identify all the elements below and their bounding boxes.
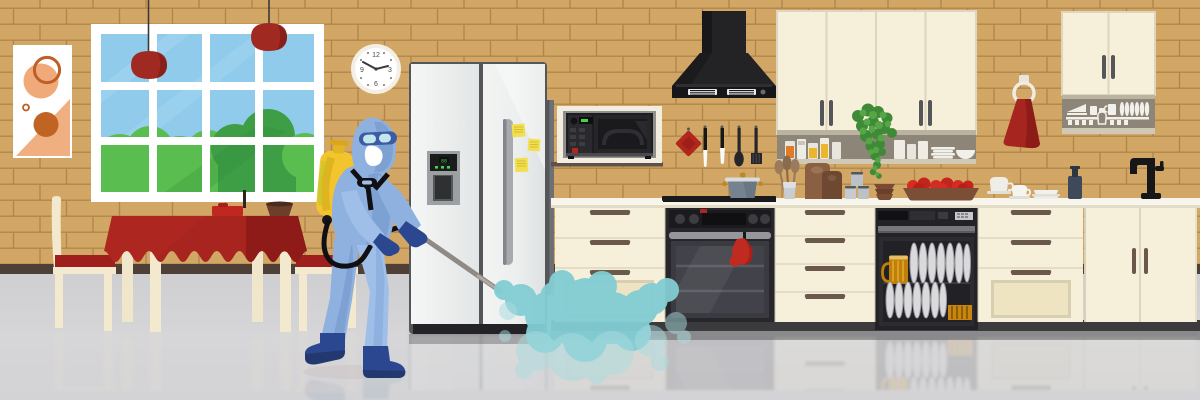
svg-text:12: 12 xyxy=(372,52,380,59)
svg-text:9: 9 xyxy=(360,67,364,74)
svg-text:6: 6 xyxy=(374,81,378,88)
svg-text:3: 3 xyxy=(388,67,392,74)
